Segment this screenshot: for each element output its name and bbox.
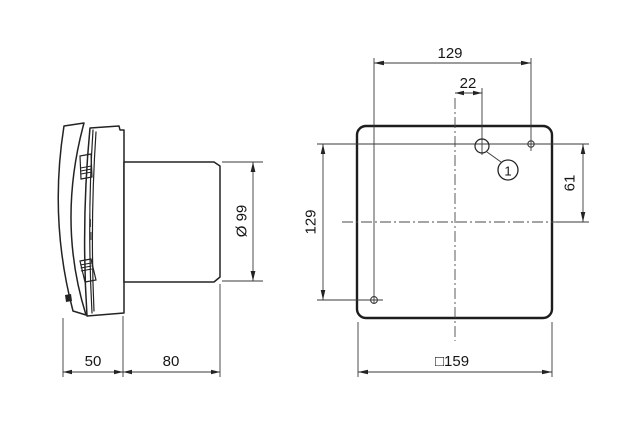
cover-indicator-dot: [65, 294, 72, 302]
dim-offset-label: 22: [460, 75, 477, 92]
dim-diameter-arrow-bottom: [251, 271, 256, 281]
dimension-drawing: Ø 99 50 80: [0, 0, 640, 421]
dim-duct-length-arrow-left: [123, 370, 132, 375]
dim-outer-size: □159: [358, 353, 552, 374]
front-view: 1 129 22 129 61: [303, 45, 590, 377]
dim-hsp-label: 129: [437, 45, 462, 62]
dim-hsp-arrow-right: [521, 61, 531, 66]
dim-hsp-arrow-left: [374, 61, 384, 66]
dim-duct-length-arrow-right: [211, 370, 220, 375]
dim-hole-spacing-horizontal: 129: [374, 45, 531, 65]
dim-vsp-arrow-bottom: [321, 290, 326, 300]
callout-1: 1: [487, 152, 518, 180]
dim-height-arrow-bottom: [581, 212, 586, 222]
dim-duct-diameter: Ø 99: [222, 162, 263, 281]
dim-outer-label: □159: [435, 353, 469, 370]
dim-vsp-arrow-top: [321, 144, 326, 154]
dim-vsp-label: 129: [303, 209, 320, 234]
dim-cover-depth-label: 50: [85, 353, 102, 370]
dim-hole-spacing-vertical: 129: [303, 144, 326, 300]
dim-duct-length-label: 80: [163, 353, 180, 370]
dim-diameter-label: Ø 99: [234, 205, 251, 238]
fan-duct: [124, 162, 220, 282]
dim-height-arrow-top: [581, 144, 586, 154]
dim-cover-depth-arrow-right: [114, 370, 123, 375]
dim-diameter-arrow-top: [251, 162, 256, 172]
callout-label: 1: [504, 164, 511, 179]
side-view: Ø 99 50 80: [58, 123, 263, 377]
dim-outer-arrow-right: [542, 370, 552, 375]
drawing-canvas: Ø 99 50 80: [0, 0, 640, 421]
callout-leader-line: [487, 152, 501, 162]
dim-cover-depth-arrow-left: [63, 370, 72, 375]
dim-hole-offset: 22: [455, 75, 482, 95]
fan-cover: [58, 123, 86, 315]
dim-outer-arrow-left: [358, 370, 368, 375]
dim-hole-height: 61: [562, 144, 586, 222]
dim-height-label: 61: [562, 175, 579, 192]
